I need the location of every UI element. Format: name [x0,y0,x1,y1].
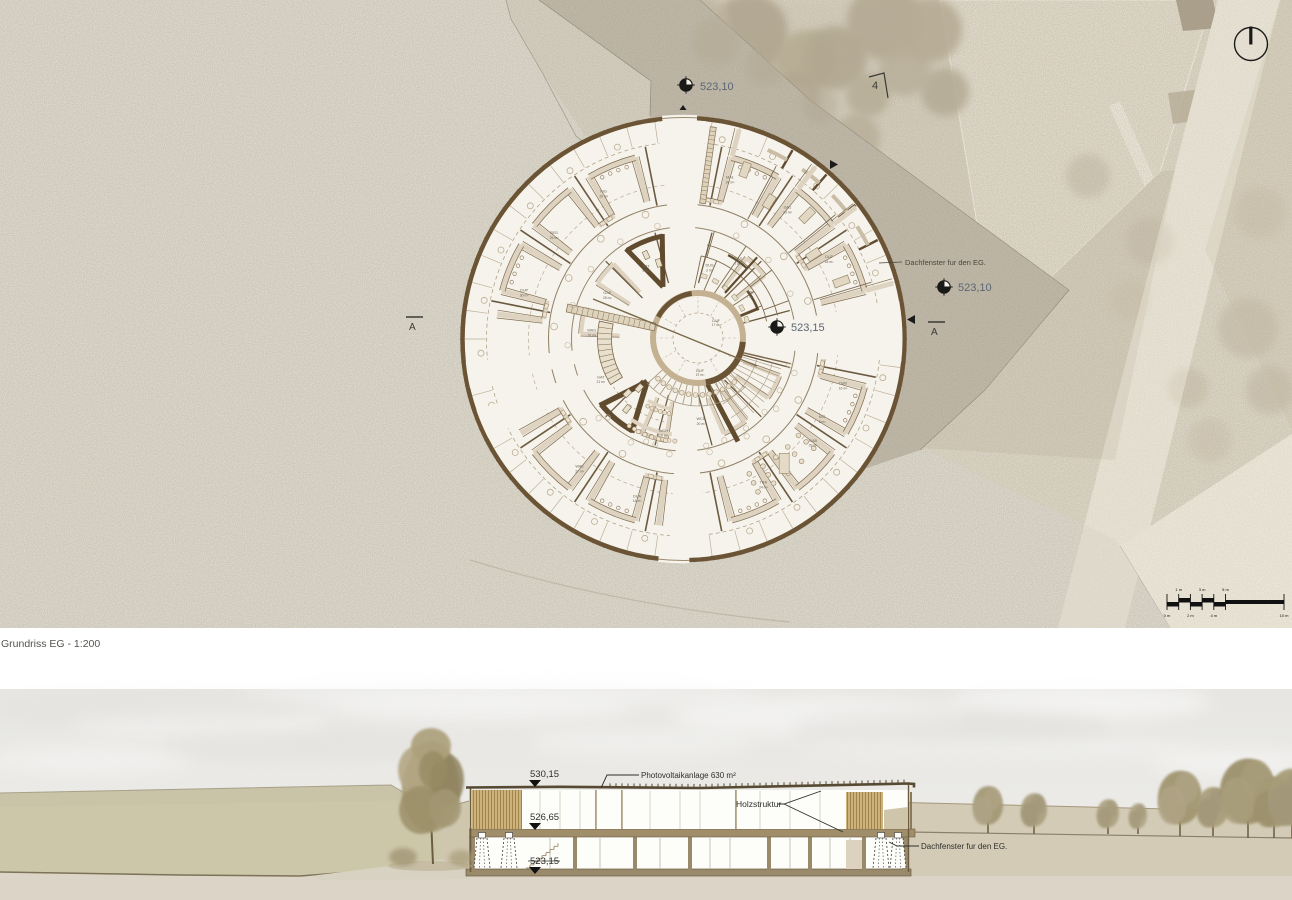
svg-text:Grundriss EG - 1:200: Grundriss EG - 1:200 [1,638,100,650]
svg-text:GAT: GAT [597,375,605,379]
svg-text:20 m²: 20 m² [697,422,707,426]
svg-text:7 m²: 7 m² [746,295,754,299]
svg-text:10 m: 10 m [1280,613,1290,618]
svg-text:530,15: 530,15 [530,769,559,780]
svg-text:SEG: SEG [550,231,558,235]
svg-text:A: A [931,327,938,338]
svg-text:18 m²: 18 m² [587,333,597,337]
svg-text:KIG: KIG [600,190,607,194]
svg-text:28 m²: 28 m² [659,434,669,438]
svg-text:Holzstruktur: Holzstruktur [736,799,782,809]
svg-text:5 m: 5 m [1222,587,1229,592]
svg-text:24 m²: 24 m² [759,485,769,489]
svg-text:20 m²: 20 m² [599,194,609,198]
svg-text:21 m²: 21 m² [596,380,606,384]
svg-text:27 m²: 27 m² [575,469,585,473]
svg-text:523,15: 523,15 [791,322,825,334]
svg-text:TRE: TRE [746,290,754,294]
svg-text:WAE: WAE [575,465,584,469]
svg-text:TRT: TRT [642,264,650,268]
svg-text:2 m: 2 m [1187,613,1194,618]
svg-text:GA1: GA1 [784,206,792,210]
svg-text:7 m²: 7 m² [735,262,743,266]
svg-text:28 m²: 28 m² [603,296,613,300]
svg-text:DUS: DUS [705,264,713,268]
svg-text:WAG: WAG [587,329,596,333]
svg-text:523,10: 523,10 [700,81,734,93]
svg-text:4 m: 4 m [1210,613,1217,618]
svg-text:DUP: DUP [520,289,528,293]
svg-text:16 m²: 16 m² [839,386,849,390]
svg-text:GAB: GAB [809,439,817,443]
svg-text:8 m²: 8 m² [819,420,827,424]
svg-text:28 m²: 28 m² [726,180,736,184]
svg-text:25 m²: 25 m² [550,236,560,240]
svg-text:23 m²: 23 m² [783,210,793,214]
svg-text:MA1: MA1 [726,176,734,180]
svg-text:18 m²: 18 m² [825,260,835,264]
svg-text:17 m²: 17 m² [712,323,722,327]
svg-text:0 m: 0 m [1164,613,1171,618]
svg-text:TRA: TRA [759,481,767,485]
svg-text:Photovoltaikanlage 630 m²: Photovoltaikanlage 630 m² [641,771,736,780]
svg-text:14 m²: 14 m² [633,499,643,503]
svg-text:523,15: 523,15 [530,856,559,867]
svg-text:17 m²: 17 m² [696,373,706,377]
svg-text:Dachfenster fur den EG.: Dachfenster fur den EG. [921,842,1007,851]
svg-text:WCD: WCD [696,417,705,421]
svg-text:29 m²: 29 m² [809,444,819,448]
svg-text:9 m²: 9 m² [643,269,651,273]
svg-text:DUA: DUA [633,494,641,498]
svg-text:Dachfenster fur den EG.: Dachfenster fur den EG. [905,258,986,267]
svg-text:1 m: 1 m [1175,587,1182,592]
svg-text:KIG: KIG [819,415,826,419]
svg-text:4: 4 [872,80,878,92]
svg-text:GAE: GAE [603,291,611,295]
svg-text:523,10: 523,10 [958,282,992,294]
svg-text:30 m²: 30 m² [520,293,530,297]
svg-text:3 m: 3 m [1199,587,1206,592]
svg-text:A: A [409,322,416,333]
svg-text:WCH: WCH [659,429,668,433]
svg-text:DUB: DUB [839,382,847,386]
svg-text:526,65: 526,65 [530,812,559,823]
svg-text:DUT: DUT [825,255,833,259]
svg-text:2 m²: 2 m² [706,268,714,272]
svg-text:GAS: GAS [734,257,742,261]
